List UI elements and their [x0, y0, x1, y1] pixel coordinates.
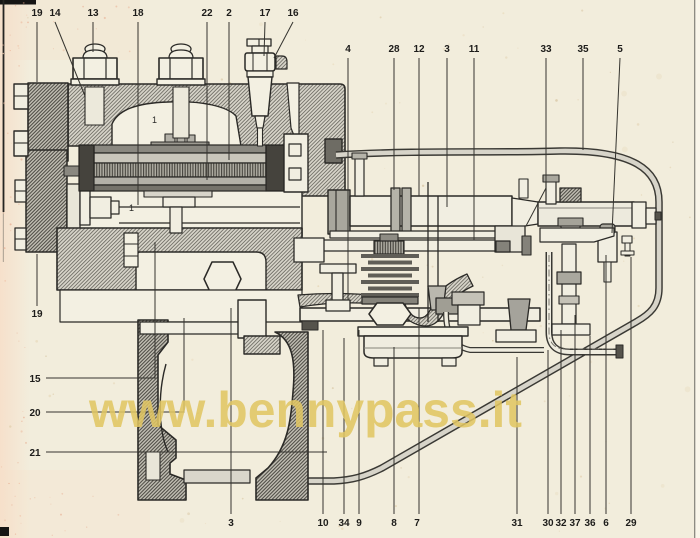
svg-text:3: 3 [228, 518, 234, 529]
svg-text:8: 8 [391, 518, 397, 529]
svg-text:13: 13 [87, 8, 99, 19]
svg-text:20: 20 [29, 408, 41, 419]
svg-text:32: 32 [555, 518, 567, 529]
svg-text:3: 3 [444, 44, 450, 55]
svg-text:2: 2 [226, 8, 232, 19]
svg-text:4: 4 [345, 44, 351, 55]
svg-text:22: 22 [201, 8, 213, 19]
svg-text:19: 19 [31, 8, 43, 19]
svg-text:29: 29 [625, 518, 637, 529]
svg-text:1: 1 [152, 115, 157, 125]
svg-text:9: 9 [356, 518, 362, 529]
svg-text:34: 34 [338, 518, 350, 529]
svg-text:15: 15 [29, 374, 41, 385]
svg-text:33: 33 [540, 44, 552, 55]
svg-text:www.bennypass.it: www.bennypass.it [88, 382, 522, 438]
svg-text:6: 6 [603, 518, 609, 529]
svg-text:21: 21 [29, 448, 41, 459]
svg-text:30: 30 [542, 518, 554, 529]
svg-text:7: 7 [414, 518, 420, 529]
svg-text:5: 5 [617, 44, 623, 55]
svg-text:11: 11 [469, 44, 480, 55]
svg-text:31: 31 [511, 518, 523, 529]
svg-text:28: 28 [388, 44, 400, 55]
svg-text:12: 12 [413, 44, 425, 55]
svg-text:19: 19 [31, 309, 43, 320]
svg-text:16: 16 [287, 8, 299, 19]
svg-text:14: 14 [49, 8, 61, 19]
svg-text:18: 18 [132, 8, 144, 19]
svg-text:10: 10 [317, 518, 329, 529]
svg-text:1: 1 [129, 203, 134, 213]
svg-text:17: 17 [259, 8, 271, 19]
svg-text:37: 37 [569, 518, 581, 529]
svg-text:35: 35 [577, 44, 589, 55]
svg-text:36: 36 [584, 518, 596, 529]
